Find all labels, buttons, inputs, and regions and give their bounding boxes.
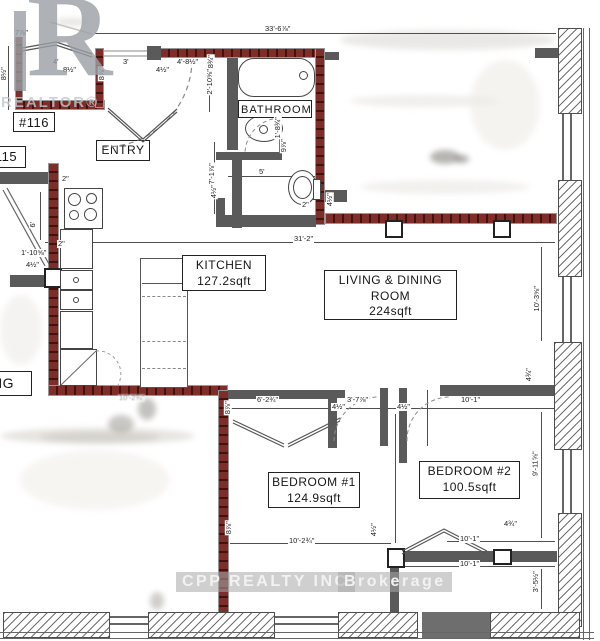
dimension-label: 9⅞" — [280, 138, 288, 153]
dimension-label: 4½" — [370, 522, 378, 537]
dimension-label: 4½" — [326, 192, 334, 207]
dimension-label: 10'-1" — [460, 396, 481, 404]
dimension-label: 31'-2" — [293, 235, 314, 243]
watermark-brokerage-suffix: Brokerage — [338, 572, 452, 592]
dimension-label: 8⅞" — [225, 520, 233, 535]
dimension-label: 4½" — [210, 184, 218, 199]
dimension-label: 2'-10⅝" — [206, 68, 214, 95]
dimension-label: 4½" — [155, 66, 170, 74]
floor-plan: #116 115 NG ENTRY BATHROOM KITCHEN 127.2… — [0, 0, 600, 641]
dimension-label: 10'-1" — [459, 560, 480, 568]
dimension-label: 1'-8¾" — [274, 116, 282, 139]
realtor-logo-bar — [14, 11, 26, 91]
dimension-label: 4½" — [331, 403, 346, 411]
realtor-logo-letter: R — [27, 0, 112, 95]
dimension-label: 2" — [57, 240, 66, 248]
dimension-label: 4'-8½" — [176, 58, 199, 66]
watermark-brokerage-name: CPP REALTY INC — [176, 572, 355, 592]
dimension-label: 4¾" — [525, 367, 533, 382]
dimension-label: 2" — [61, 175, 70, 183]
dimension-label: 10'-2¾" — [118, 394, 145, 402]
dimension-label: 8¾" — [207, 54, 215, 69]
dimension-label: 3'-5½" — [532, 570, 540, 593]
dimension-label: 10'-3⅝" — [533, 285, 541, 312]
dimension-label: 6' — [29, 221, 37, 229]
dimension-label: 4¾" — [503, 520, 518, 528]
dimension-label: 1'-10⅝" — [20, 249, 47, 257]
dimension-label: 3' — [122, 58, 130, 66]
dimension-label: 6'-2¾" — [256, 396, 279, 404]
dimension-label: 10'-1" — [459, 535, 480, 543]
dimension-label: 5' — [258, 168, 266, 176]
dimension-label: 7'-1⅞" — [208, 162, 216, 185]
realtor-logo-text: REALTOR® — [1, 94, 141, 111]
dimension-label: 2" — [301, 201, 310, 209]
dimension-label: 9'-11⅝" — [532, 450, 540, 477]
dimension-label: 3'-7⅞" — [346, 396, 369, 404]
dimension-label: 10'-2¾" — [288, 537, 315, 545]
dimension-label: 33'-6⅞" — [264, 25, 291, 33]
dimension-label: 8⅞" — [224, 400, 232, 415]
dimension-label: 8½" — [0, 66, 7, 81]
dimension-label: 4½" — [396, 403, 411, 411]
dimension-label: 4½" — [25, 261, 40, 269]
